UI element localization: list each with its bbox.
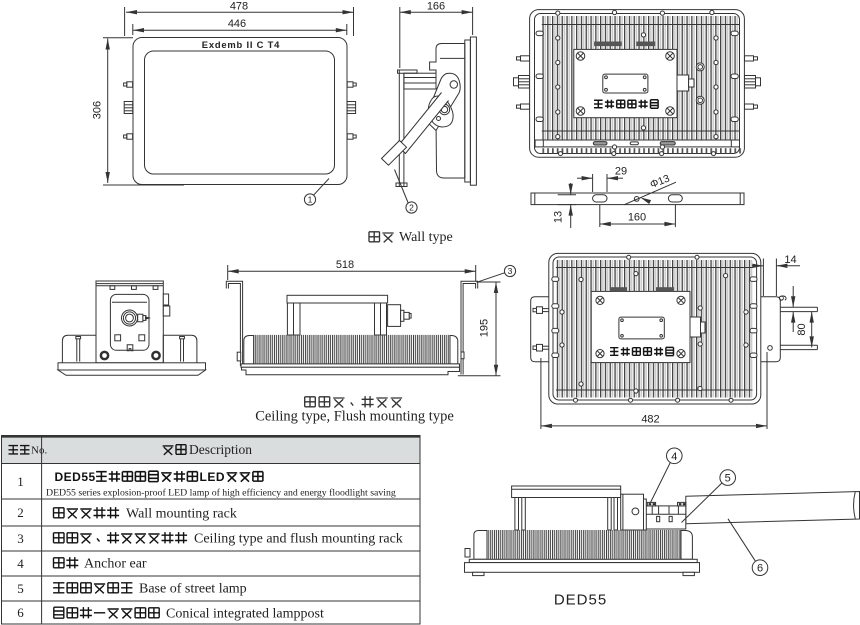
svg-text:DED55 series explosion-proof L: DED55 series explosion-proof LED lamp of… bbox=[46, 488, 396, 499]
svg-text:3: 3 bbox=[508, 266, 513, 276]
svg-text:478: 478 bbox=[230, 1, 248, 13]
svg-text:5: 5 bbox=[17, 581, 24, 596]
svg-text:518: 518 bbox=[336, 259, 354, 271]
svg-text:4: 4 bbox=[671, 451, 677, 463]
svg-text:195: 195 bbox=[479, 319, 491, 337]
svg-text:Exdemb II C T4: Exdemb II C T4 bbox=[202, 39, 280, 50]
svg-text:3: 3 bbox=[17, 531, 24, 546]
svg-text:14: 14 bbox=[784, 254, 796, 266]
svg-text:Base of street lamp: Base of street lamp bbox=[139, 582, 247, 597]
svg-text:Ceiling type, Flush mounting t: Ceiling type, Flush mounting type bbox=[255, 409, 454, 425]
svg-text:80: 80 bbox=[796, 323, 808, 335]
svg-text:Wall type: Wall type bbox=[399, 230, 453, 245]
svg-text:9: 9 bbox=[778, 295, 790, 301]
svg-text:2: 2 bbox=[17, 505, 24, 520]
svg-text:482: 482 bbox=[641, 414, 659, 426]
svg-text:2: 2 bbox=[409, 203, 414, 213]
svg-text:LED: LED bbox=[200, 470, 226, 484]
svg-text:DED55: DED55 bbox=[554, 592, 607, 609]
svg-text:446: 446 bbox=[228, 18, 246, 30]
svg-text:160: 160 bbox=[628, 212, 646, 224]
svg-text:6: 6 bbox=[757, 563, 763, 575]
svg-text:Description: Description bbox=[189, 442, 252, 457]
svg-text:4: 4 bbox=[17, 556, 24, 571]
svg-text:Ceiling type and flush mountin: Ceiling type and flush mounting rack bbox=[194, 532, 403, 547]
svg-text:DED55: DED55 bbox=[55, 470, 96, 484]
svg-text:1: 1 bbox=[17, 474, 24, 489]
svg-text:Wall mounting rack: Wall mounting rack bbox=[126, 507, 237, 522]
svg-text:Anchor ear: Anchor ear bbox=[84, 557, 147, 572]
svg-text:29: 29 bbox=[615, 166, 627, 178]
svg-text:166: 166 bbox=[427, 1, 445, 13]
svg-text:1: 1 bbox=[308, 195, 313, 205]
svg-text:13: 13 bbox=[553, 211, 565, 223]
svg-text:Conical integrated lamppost: Conical integrated lamppost bbox=[166, 607, 324, 622]
svg-text:5: 5 bbox=[725, 473, 731, 485]
svg-text:6: 6 bbox=[17, 605, 24, 620]
svg-text:306: 306 bbox=[92, 101, 104, 119]
svg-text:No.: No. bbox=[31, 445, 47, 457]
